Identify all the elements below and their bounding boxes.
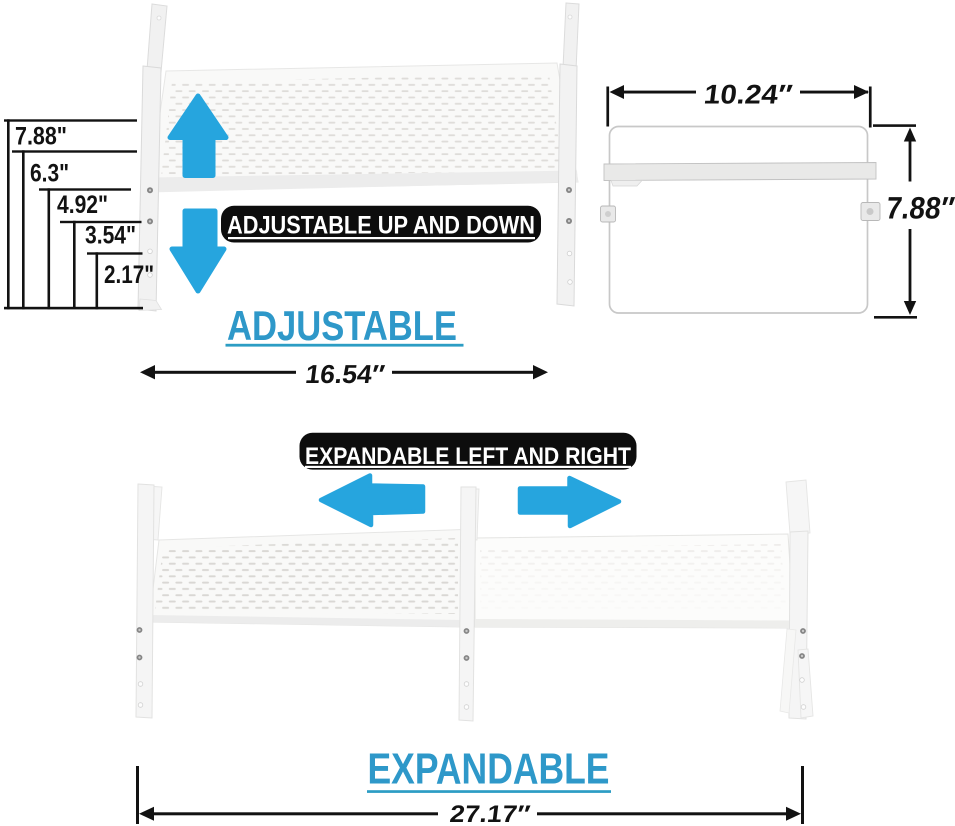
svg-text:4.92": 4.92" xyxy=(57,191,108,219)
svg-text:EXPANDABLE LEFT AND RIGHT: EXPANDABLE LEFT AND RIGHT xyxy=(305,443,631,470)
svg-text:6.3": 6.3" xyxy=(30,160,69,188)
svg-text:16.54″: 16.54″ xyxy=(304,359,387,389)
svg-text:7.88": 7.88" xyxy=(15,123,67,151)
svg-text:EXPANDABLE: EXPANDABLE xyxy=(368,745,610,793)
svg-text:ADJUSTABLE UP AND DOWN: ADJUSTABLE UP AND DOWN xyxy=(227,211,535,239)
svg-text:2.17": 2.17" xyxy=(104,261,154,289)
svg-text:3.54": 3.54" xyxy=(85,222,136,250)
svg-text:7.88″: 7.88″ xyxy=(884,191,955,226)
svg-text:ADJUSTABLE: ADJUSTABLE xyxy=(227,302,457,349)
svg-text:10.24″: 10.24″ xyxy=(702,79,794,110)
svg-text:27.17″: 27.17″ xyxy=(448,801,532,826)
